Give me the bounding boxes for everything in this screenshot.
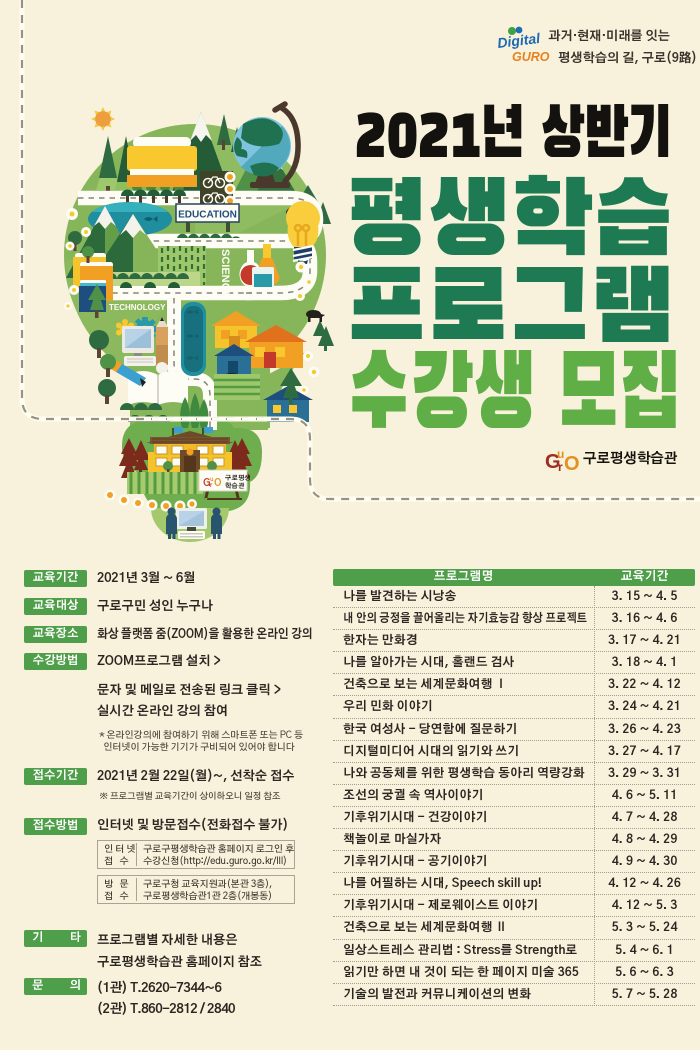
- svg-text:r: r: [210, 483, 212, 489]
- svg-text:u: u: [210, 478, 213, 483]
- svg-text:EDUCATION: EDUCATION: [178, 210, 237, 221]
- svg-text:O: O: [214, 478, 222, 489]
- svg-text:Digital: Digital: [496, 30, 542, 51]
- svg-text:구로평생: 구로평생: [225, 474, 251, 482]
- svg-text:TECHNOLOGY: TECHNOLOGY: [109, 303, 166, 312]
- svg-text:GURO: GURO: [512, 50, 550, 64]
- svg-text:r: r: [558, 460, 563, 474]
- svg-text:SCIENCE: SCIENCE: [219, 249, 231, 298]
- svg-text:O: O: [564, 453, 579, 474]
- svg-text:학습관: 학습관: [225, 482, 245, 490]
